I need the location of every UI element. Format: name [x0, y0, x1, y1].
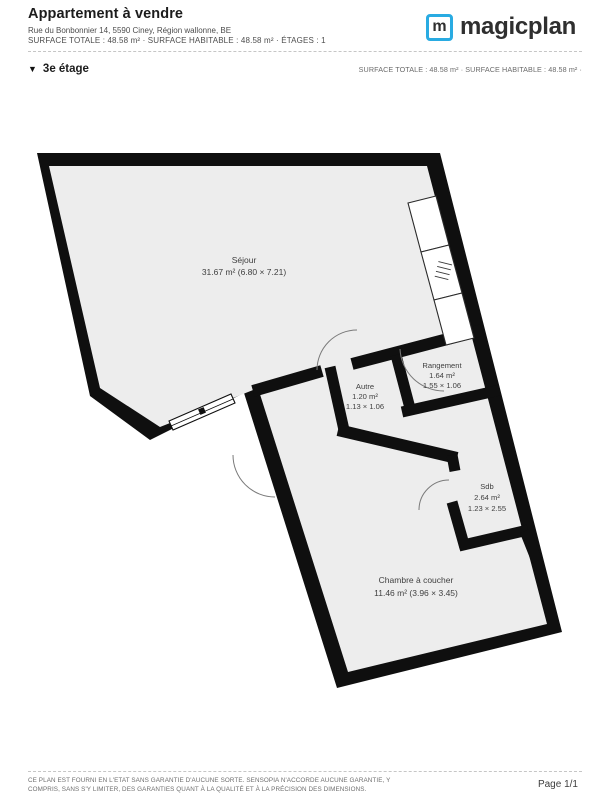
- svg-text:Autre: Autre: [356, 382, 374, 391]
- svg-text:31.67 m² (6.80 × 7.21): 31.67 m² (6.80 × 7.21): [202, 267, 287, 277]
- surface-summary-line: SURFACE TOTALE : 48.58 m² · SURFACE HABI…: [28, 36, 326, 45]
- property-address: Rue du Bonbonnier 14, 5590 Ciney, Région…: [28, 26, 231, 35]
- svg-text:Rangement: Rangement: [422, 361, 462, 370]
- floorplan-page: Appartement à vendre Rue du Bonbonnier 1…: [0, 0, 600, 800]
- svg-text:11.46 m² (3.96 × 3.45): 11.46 m² (3.96 × 3.45): [374, 588, 458, 598]
- floor-plan-svg: Séjour 31.67 m² (6.80 × 7.21) Autre 1.20…: [0, 85, 600, 761]
- disclaimer-line2: COMPRIS, SANS S'Y LIMITER, DES GARANTIES…: [28, 786, 448, 795]
- page-number: Page 1/1: [538, 779, 578, 790]
- collapse-triangle-icon[interactable]: ▼: [28, 65, 37, 74]
- wall-sdb-left-upper: [452, 455, 455, 471]
- svg-text:Sdb: Sdb: [480, 482, 494, 491]
- footer-divider: [28, 771, 582, 772]
- magicplan-logo: m magicplan: [426, 13, 576, 41]
- floor-plan-area: Séjour 31.67 m² (6.80 × 7.21) Autre 1.20…: [0, 85, 600, 761]
- header-divider: [28, 51, 582, 52]
- floor-surface-summary: SURFACE TOTALE : 48.58 m² · SURFACE HABI…: [359, 65, 582, 74]
- floor-label: 3e étage: [43, 63, 89, 75]
- svg-text:1.13 × 1.06: 1.13 × 1.06: [346, 402, 384, 411]
- svg-text:Séjour: Séjour: [232, 255, 257, 265]
- floor-section-toggle[interactable]: ▼ 3e étage: [28, 63, 89, 75]
- svg-text:1.55 × 1.06: 1.55 × 1.06: [423, 381, 461, 390]
- magicplan-logo-icon: m: [426, 14, 453, 41]
- magicplan-wordmark: magicplan: [460, 13, 576, 41]
- svg-text:1.20 m²: 1.20 m²: [352, 392, 378, 401]
- floor-section-bar: ▼ 3e étage SURFACE TOTALE : 48.58 m² · S…: [28, 61, 582, 77]
- svg-text:1.23 × 2.55: 1.23 × 2.55: [468, 504, 506, 513]
- disclaimer: CE PLAN EST FOURNI EN L'ETAT SANS GARANT…: [28, 777, 448, 794]
- disclaimer-line1: CE PLAN EST FOURNI EN L'ETAT SANS GARANT…: [28, 777, 448, 786]
- svg-text:2.64 m²: 2.64 m²: [474, 493, 500, 502]
- svg-text:1.64 m²: 1.64 m²: [429, 371, 455, 380]
- page-title: Appartement à vendre: [28, 6, 183, 22]
- svg-text:Chambre à coucher: Chambre à coucher: [379, 575, 454, 585]
